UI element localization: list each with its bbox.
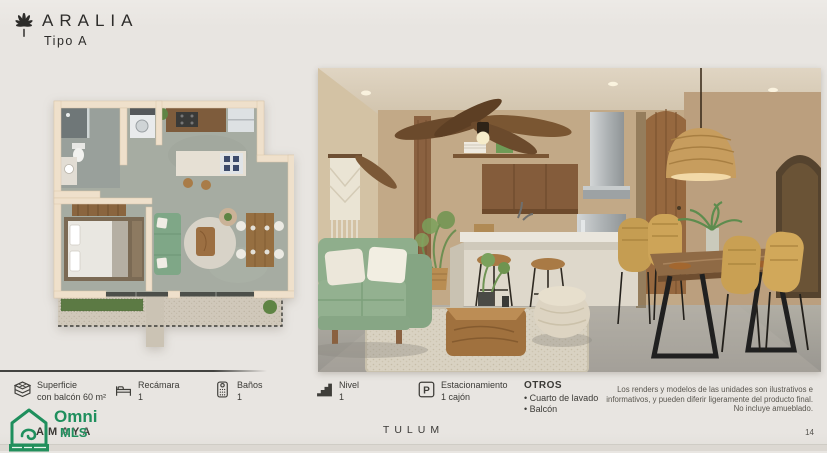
specs-divider xyxy=(0,370,267,372)
omni-house-icon xyxy=(8,407,50,453)
area-icon xyxy=(14,381,31,398)
page-number: 14 xyxy=(805,428,814,437)
woven-pouf xyxy=(532,286,592,347)
svg-text:P: P xyxy=(423,386,430,397)
watermark-mls-text: MLS xyxy=(60,425,87,440)
plan-closet xyxy=(72,203,126,216)
spec-value: 1 xyxy=(339,392,359,404)
spec-superficie: Superficie con balcón 60 m² xyxy=(14,380,106,403)
watermark-omni-text: Omni xyxy=(54,407,97,427)
spec-value: 1 xyxy=(138,392,180,404)
brand-name: ARALIA xyxy=(42,11,138,31)
range-hood xyxy=(583,112,630,199)
floor-plan-image xyxy=(48,95,294,347)
spec-recamara: Recámara 1 xyxy=(115,380,180,403)
aralia-leaf-icon xyxy=(13,13,35,39)
disclaimer-line: informativos, y pueden diferir ligeramen… xyxy=(483,395,813,405)
spec-label: Baños xyxy=(237,380,263,392)
interior-render-image xyxy=(318,68,821,372)
spec-nivel: Nivel 1 xyxy=(316,380,359,403)
spec-value: con balcón 60 m² xyxy=(37,392,106,404)
disclaimer-line: Los renders y modelos de las unidades so… xyxy=(483,385,813,395)
brand-header: ARALIA Tipo A xyxy=(13,11,138,48)
stairs-icon xyxy=(316,381,333,398)
spec-value: 1 xyxy=(237,392,263,404)
plan-laundry xyxy=(130,108,155,138)
disclaimer-text: Los renders y modelos de las unidades so… xyxy=(483,385,813,414)
plan-terrace xyxy=(58,291,282,347)
plan-bathroom xyxy=(61,108,120,188)
brochure-page: ARALIA Tipo A xyxy=(0,0,827,451)
unit-type: Tipo A xyxy=(44,34,138,48)
omni-mls-watermark: AMAYA Omni MLS xyxy=(8,405,138,451)
spec-label: Recámara xyxy=(138,380,180,392)
shower-icon xyxy=(214,381,231,398)
bed-icon xyxy=(115,381,132,398)
spec-banos: Baños 1 xyxy=(214,380,263,403)
spec-label: Nivel xyxy=(339,380,359,392)
plan-bedroom xyxy=(64,217,144,281)
parking-icon: P xyxy=(418,381,435,398)
disclaimer-line: No incluye amueblado. xyxy=(483,404,813,414)
spec-label: Superficie xyxy=(37,380,106,392)
